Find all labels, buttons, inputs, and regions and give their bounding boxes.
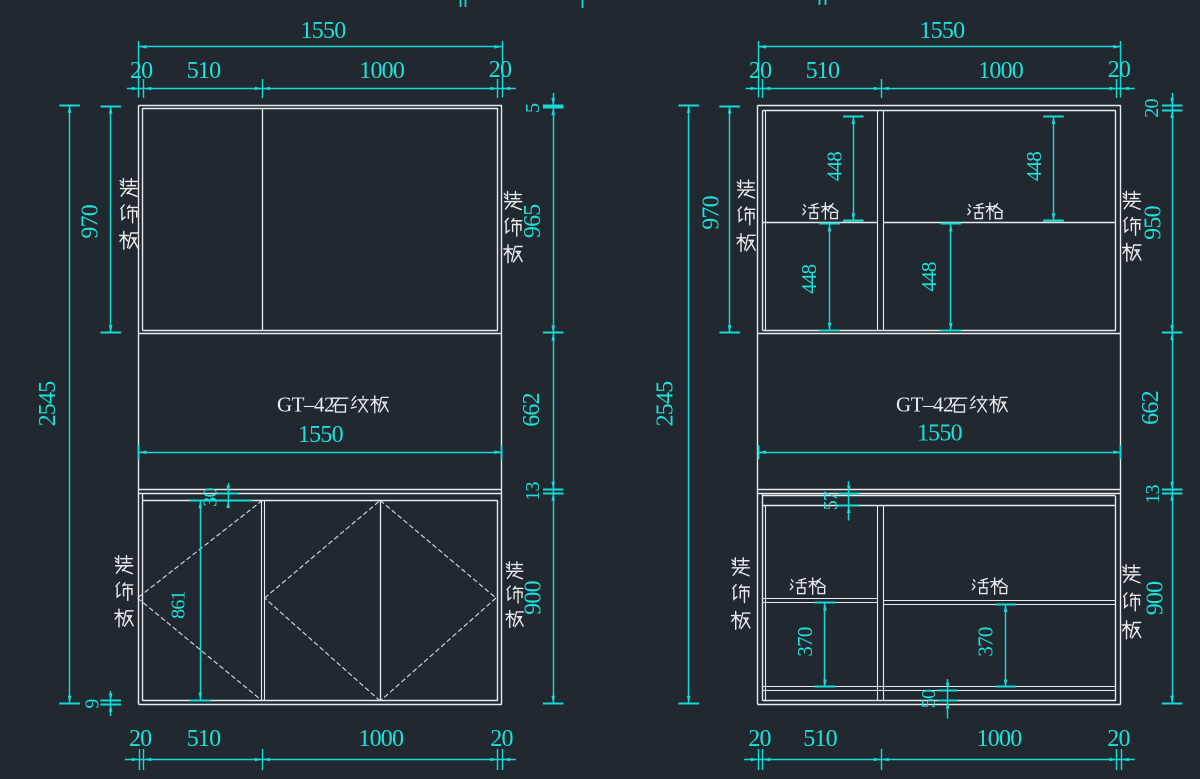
svg-text:20: 20 [490, 726, 513, 752]
svg-text:GT–42: GT–42 [277, 393, 334, 417]
svg-text:510: 510 [187, 58, 221, 84]
svg-text:448: 448 [823, 152, 847, 181]
svg-text:1550: 1550 [917, 421, 963, 447]
svg-text:5: 5 [522, 103, 544, 113]
svg-text:13: 13 [522, 482, 544, 501]
svg-text:448: 448 [1022, 152, 1046, 181]
svg-text:GT–42: GT–42 [896, 393, 953, 417]
svg-text:510: 510 [806, 58, 840, 84]
svg-text:662: 662 [519, 393, 545, 427]
svg-text:1000: 1000 [359, 58, 405, 84]
svg-text:965: 965 [520, 204, 546, 238]
svg-text:900: 900 [521, 580, 547, 614]
svg-text:2545: 2545 [35, 381, 61, 427]
svg-text:13: 13 [1142, 484, 1164, 503]
svg-text:662: 662 [1138, 391, 1164, 425]
svg-text:50: 50 [918, 689, 940, 708]
svg-text:1550: 1550 [298, 422, 344, 448]
svg-text:2545: 2545 [653, 381, 679, 427]
svg-text:20: 20 [1107, 726, 1130, 752]
svg-text:1000: 1000 [358, 726, 404, 752]
svg-text:1000: 1000 [977, 726, 1023, 752]
svg-text:20: 20 [130, 58, 153, 84]
svg-text:9: 9 [82, 699, 104, 709]
svg-text:510: 510 [187, 726, 221, 752]
svg-text:861: 861 [167, 591, 189, 619]
svg-text:950: 950 [1141, 205, 1167, 239]
svg-text:448: 448 [797, 264, 821, 293]
svg-text:970: 970 [698, 195, 724, 229]
svg-text:900: 900 [1142, 581, 1168, 615]
svg-text:57: 57 [820, 491, 842, 510]
svg-text:1000: 1000 [978, 58, 1024, 84]
svg-text:20: 20 [748, 726, 771, 752]
svg-text:1550: 1550 [301, 18, 347, 44]
svg-text:30: 30 [200, 488, 222, 507]
svg-text:370: 370 [793, 627, 817, 656]
svg-text:510: 510 [803, 726, 837, 752]
svg-text:20: 20 [1141, 99, 1163, 118]
svg-text:1550: 1550 [919, 18, 965, 44]
svg-text:370: 370 [974, 627, 998, 656]
svg-text:20: 20 [1108, 57, 1131, 83]
svg-text:970: 970 [77, 204, 103, 238]
svg-text:448: 448 [917, 262, 941, 291]
svg-text:20: 20 [489, 57, 512, 83]
svg-text:20: 20 [129, 726, 152, 752]
svg-text:20: 20 [749, 58, 772, 84]
